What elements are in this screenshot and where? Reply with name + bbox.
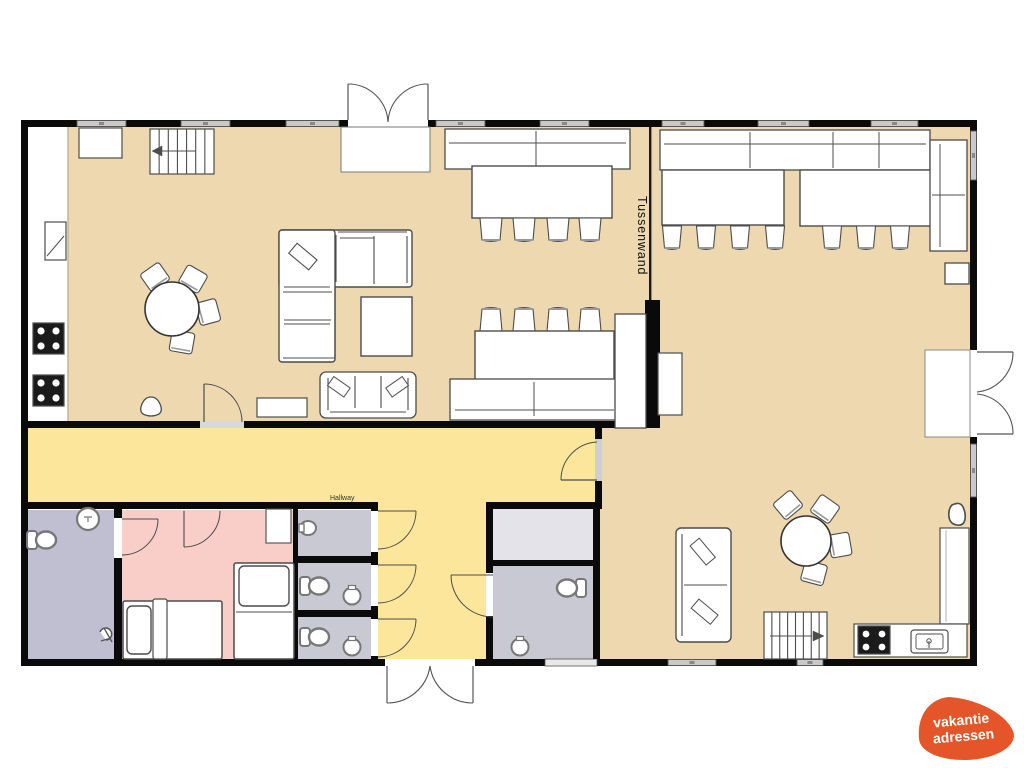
svg-text:Hallway: Hallway <box>330 495 355 502</box>
svg-text:Tussenwand: Tussenwand <box>635 196 649 275</box>
